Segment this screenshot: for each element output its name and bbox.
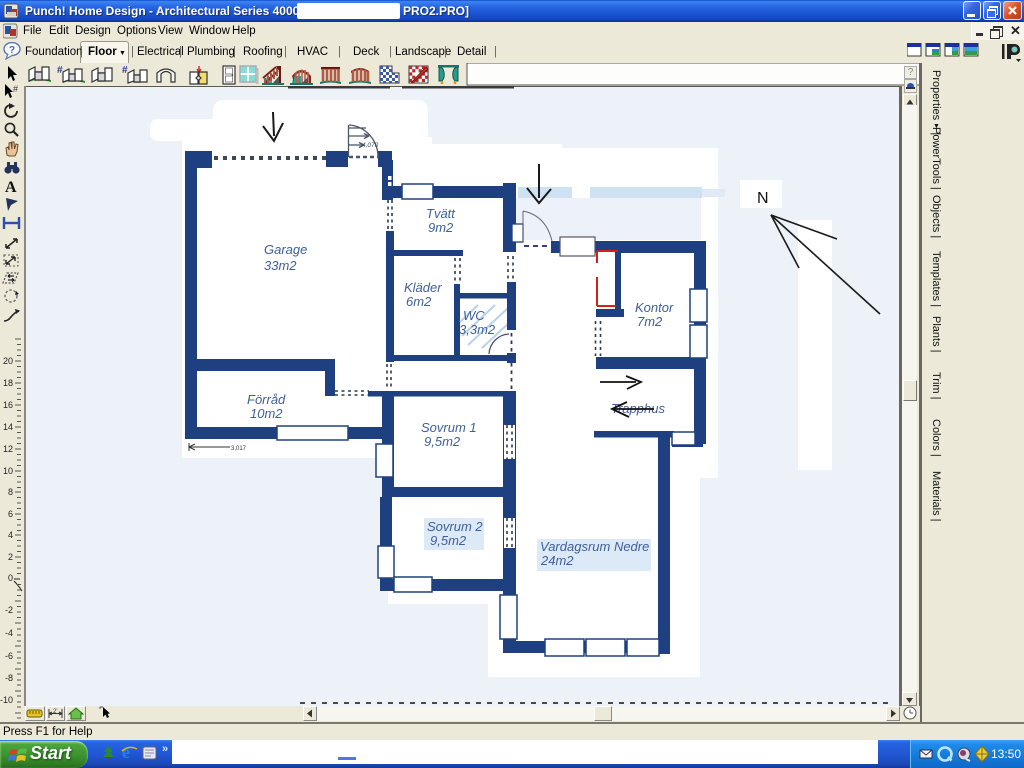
svg-text:4: 4: [8, 530, 13, 540]
svg-text:Sovrum 1: Sovrum 1: [421, 420, 477, 435]
svg-text:18: 18: [3, 378, 13, 388]
svg-text:10m2: 10m2: [250, 406, 283, 421]
svg-text:9,5m2: 9,5m2: [430, 533, 467, 548]
svg-text:7m2: 7m2: [637, 314, 663, 329]
svg-text:0: 0: [8, 573, 13, 583]
svg-text:#: #: [57, 65, 63, 76]
svg-text:12: 12: [3, 444, 13, 454]
svg-text:Sovrum 2: Sovrum 2: [427, 519, 483, 534]
svg-text:-10: -10: [0, 695, 13, 705]
svg-text:24m2: 24m2: [540, 553, 574, 568]
svg-text:N: N: [757, 190, 769, 207]
svg-text:Kläder: Kläder: [404, 280, 442, 295]
svg-text:33m2: 33m2: [264, 258, 297, 273]
svg-text:Kontor: Kontor: [635, 300, 674, 315]
svg-text:#: #: [13, 84, 18, 94]
svg-text:-4: -4: [5, 628, 13, 638]
svg-text:10: 10: [3, 466, 13, 476]
svg-text:Vardagsrum Nedre: Vardagsrum Nedre: [540, 539, 649, 554]
svg-text:-8: -8: [5, 673, 13, 683]
svg-text:6: 6: [8, 509, 13, 519]
svg-text:3,3m2: 3,3m2: [459, 322, 496, 337]
svg-text:8: 8: [8, 487, 13, 497]
svg-text:20: 20: [3, 356, 13, 366]
svg-text:Förråd: Förråd: [247, 392, 286, 407]
svg-text:3,017: 3,017: [231, 446, 247, 452]
svg-text:-6: -6: [5, 651, 13, 661]
svg-text:-2: -2: [5, 605, 13, 615]
svg-text:4,070: 4,070: [362, 142, 379, 149]
svg-text:WC: WC: [463, 308, 485, 323]
svg-text:9,5m2: 9,5m2: [424, 434, 461, 449]
svg-text:2': 2': [53, 709, 57, 715]
svg-text:e: e: [122, 743, 130, 761]
svg-text:A: A: [5, 179, 17, 196]
svg-text:14: 14: [3, 422, 13, 432]
svg-text:Garage: Garage: [264, 242, 307, 257]
svg-text:16: 16: [3, 400, 13, 410]
svg-text:6m2: 6m2: [406, 294, 432, 309]
svg-text:?: ?: [9, 45, 15, 56]
svg-text:#: #: [122, 65, 128, 76]
svg-text:Tvätt: Tvätt: [426, 206, 456, 221]
svg-text:9m2: 9m2: [428, 220, 454, 235]
svg-text:2: 2: [8, 552, 13, 562]
